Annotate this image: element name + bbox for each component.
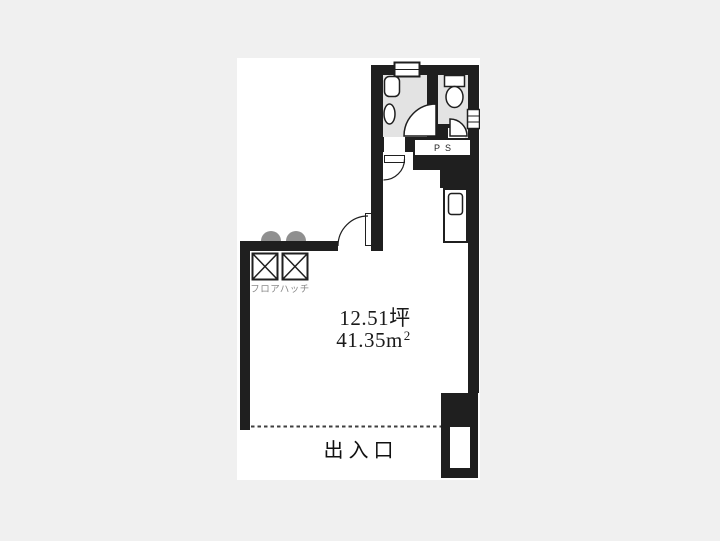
pipe-space-box: PS: [413, 138, 472, 157]
pipe-space-label: PS: [434, 143, 456, 153]
floor-hatch-icon: [253, 254, 278, 280]
entrance-door-swing-arc: [338, 216, 368, 246]
entrance-label: 出入口: [286, 434, 431, 463]
area-sqm-text: 41.35m2: [283, 328, 463, 353]
wall-main-top: [240, 241, 338, 251]
washroom-door-opening: [384, 137, 405, 155]
watermark-arc: [286, 231, 306, 241]
wall-bathroom-divider: [427, 75, 438, 124]
wall-right: [468, 65, 479, 393]
area-sqm-value: 41.35: [336, 328, 386, 352]
washroom-door-leaf: [384, 155, 405, 163]
floor-hatch-label: フロアハッチ: [248, 281, 312, 295]
page-background: PS: [0, 0, 720, 541]
entrance-door-leaf: [365, 213, 372, 246]
floor-hatch-icon: [283, 254, 308, 280]
floorplan-canvas: PS: [237, 58, 480, 480]
column-shaft-opening: [450, 427, 470, 468]
wall-bathroom-left: [371, 65, 383, 251]
area-sqm-unit-sup: 2: [404, 328, 411, 343]
kitchen-counter-icon: [444, 189, 467, 242]
wall-bathroom-top: [371, 65, 478, 75]
watermark-arc: [261, 231, 281, 241]
area-tsubo-unit: 坪: [389, 306, 411, 330]
area-tsubo-value: 12.51: [339, 306, 389, 330]
wall-main-left: [240, 241, 250, 430]
area-sqm-unit: m: [386, 328, 403, 352]
toilet-door-opening: [448, 128, 465, 138]
